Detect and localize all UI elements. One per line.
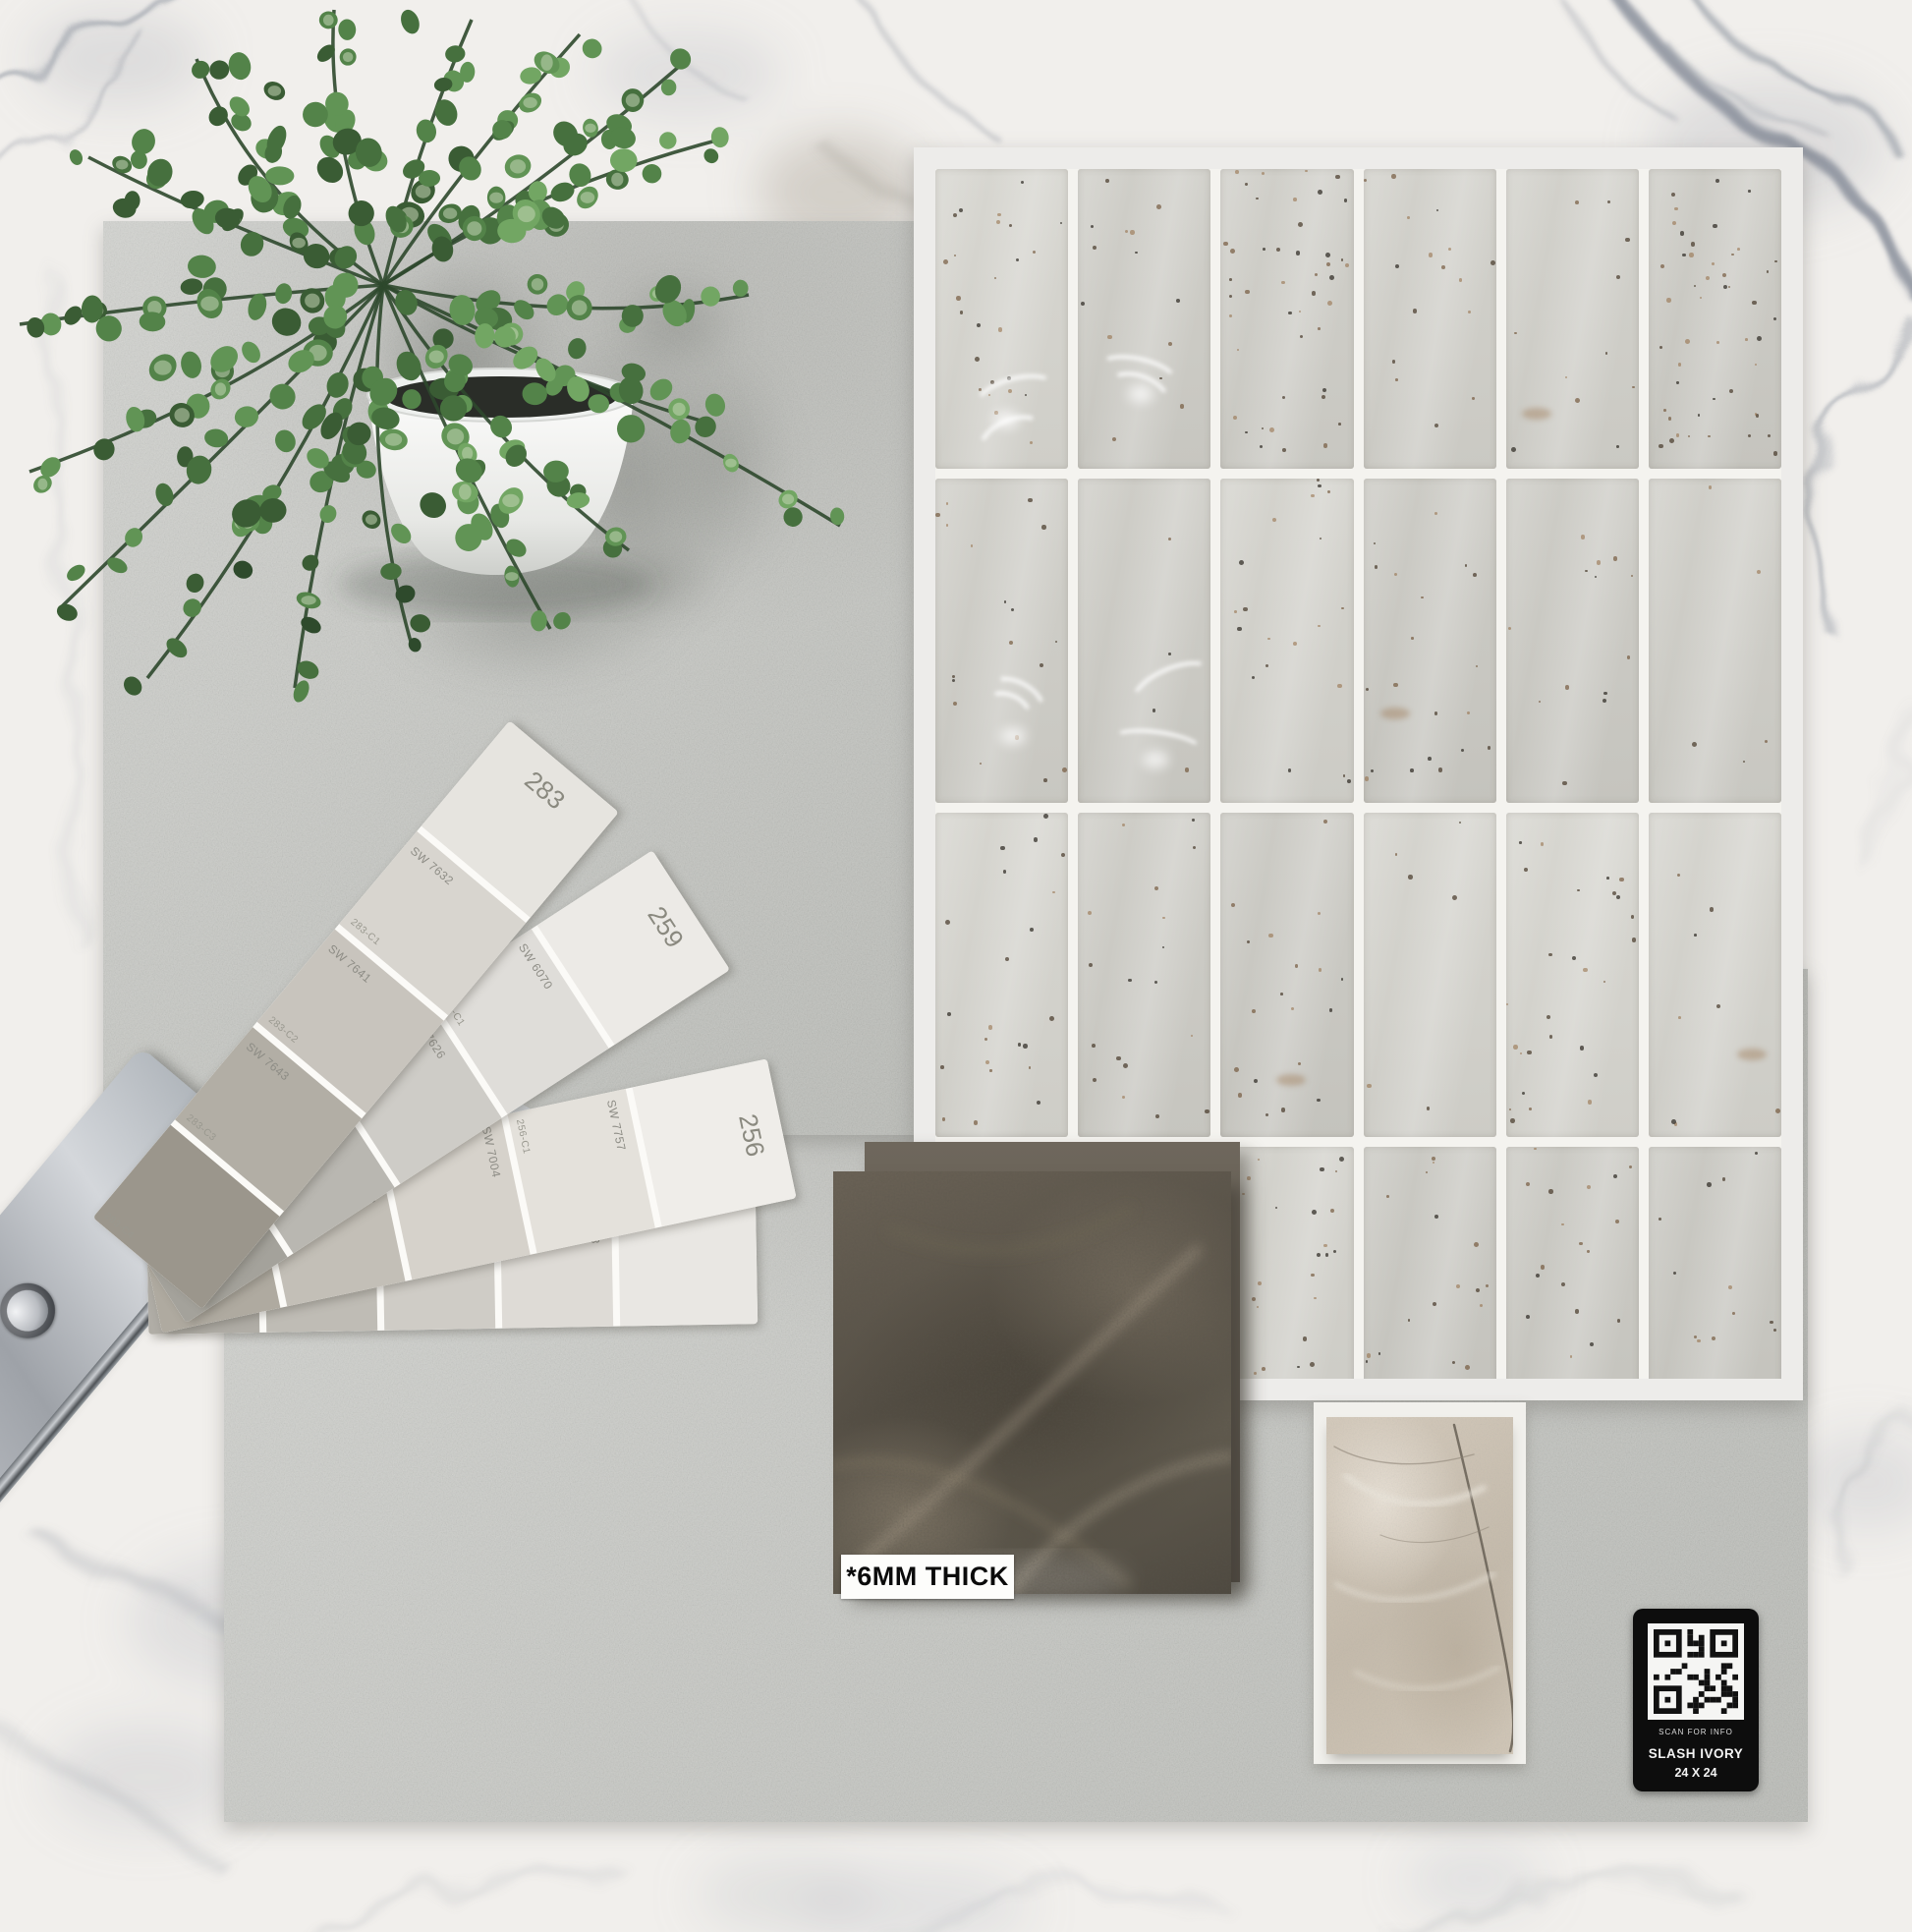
tile-speckle — [1548, 953, 1551, 956]
tile-speckle — [984, 1038, 987, 1041]
tile-speckle — [1254, 1372, 1257, 1375]
tile-speckle — [1168, 342, 1172, 346]
tile-speckle — [1297, 1366, 1299, 1368]
tile-speckle — [1671, 193, 1675, 197]
tile-speckle — [1245, 290, 1250, 295]
tile-speckle — [1722, 273, 1726, 277]
tile-speckle — [1245, 431, 1247, 433]
subway-tile — [1364, 479, 1496, 803]
tile-speckle — [1281, 281, 1285, 285]
tile-speckle — [1041, 525, 1045, 529]
tile-speckle — [1268, 934, 1272, 938]
tile-speckle — [1541, 842, 1545, 846]
tile-speckle — [1234, 1067, 1239, 1072]
tile-speckle — [1257, 1306, 1259, 1308]
tile-speckle — [1176, 299, 1180, 303]
tile-speckle — [1105, 179, 1109, 183]
tile-speckle — [1262, 172, 1265, 175]
tile-speckle — [1325, 253, 1330, 257]
subway-tile — [1364, 813, 1496, 1137]
subway-tile — [1078, 813, 1210, 1137]
tile-speckle — [988, 1025, 992, 1029]
tile-speckle — [1606, 877, 1609, 880]
tile-speckle — [1162, 946, 1164, 948]
tile-sheen — [1220, 1147, 1353, 1379]
tile-speckle — [1408, 1319, 1410, 1321]
tile-speckle — [1330, 1209, 1334, 1213]
tile-speckle — [977, 323, 981, 327]
tile-speckle — [1434, 1215, 1438, 1219]
swatch-id-code: 283-C1 — [348, 917, 382, 947]
tile-sheen — [1364, 1147, 1496, 1379]
tile-speckle — [979, 388, 982, 391]
tile-speckle — [1710, 907, 1714, 911]
tile-sheen — [1649, 813, 1781, 1137]
tile-speckle — [1230, 249, 1235, 254]
tile-speckle — [952, 679, 955, 682]
tile-speckle — [1347, 779, 1351, 783]
tile-speckle — [1305, 170, 1307, 172]
tile-speckle — [1692, 742, 1697, 747]
tile-speckle — [1395, 378, 1398, 381]
tile-speckle — [1310, 1362, 1315, 1367]
tile-speckle — [1429, 253, 1433, 256]
tile-speckle — [1258, 1159, 1260, 1161]
tile-speckle — [1205, 1109, 1209, 1114]
tile-speckle — [1088, 911, 1092, 915]
tile-speckle — [1391, 174, 1396, 179]
tile-speckle — [1680, 231, 1684, 235]
tile-speckle — [1513, 1045, 1518, 1050]
tile-speckle — [1519, 841, 1521, 843]
tile-speckle — [1337, 684, 1341, 688]
tile-speckle — [1411, 637, 1413, 639]
tile-speckle — [1234, 610, 1237, 613]
tile-speckle — [1465, 564, 1467, 566]
tile-speckle — [1375, 565, 1378, 568]
tile-sheen — [1220, 479, 1353, 803]
tile-speckle — [1317, 1099, 1321, 1103]
tile-speckle — [1303, 1336, 1307, 1340]
tile-sheen — [1078, 813, 1210, 1137]
tile-speckle — [1712, 1336, 1715, 1340]
tile-speckle — [1748, 434, 1751, 437]
tile-sheen — [1506, 169, 1639, 469]
tile-speckle — [1536, 1274, 1540, 1278]
tile-speckle — [1231, 903, 1235, 907]
tile-speckle — [1707, 1182, 1712, 1187]
tile-speckle — [1428, 757, 1432, 761]
tile-speckle — [1755, 413, 1757, 415]
tile-speckle — [1005, 957, 1009, 961]
tile-speckle — [940, 1065, 944, 1069]
tile-speckle — [1247, 940, 1250, 943]
tile-speckle — [1016, 258, 1019, 261]
swatch-sw-code: SW 7632 — [408, 844, 456, 888]
subway-tile — [1506, 813, 1639, 1137]
tile-speckle — [989, 1069, 991, 1071]
tile-speckle — [1603, 692, 1606, 695]
tile-speckle — [1434, 711, 1438, 715]
tile-speckle — [1192, 819, 1194, 821]
tile-sheen — [935, 813, 1068, 1137]
tile-speckle — [1745, 338, 1748, 341]
tile-speckle — [1526, 1182, 1530, 1186]
tile-speckle — [1548, 1189, 1553, 1194]
swatch-sw-code: SW 7757 — [604, 1099, 629, 1153]
tile-speckle — [1427, 1107, 1430, 1109]
tile-speckle — [1669, 438, 1674, 443]
tile-speckle — [1386, 1195, 1389, 1198]
tile-speckle — [1510, 1118, 1515, 1123]
tile-speckle — [1585, 570, 1588, 573]
tile-speckle — [1407, 216, 1410, 219]
subway-tile — [1649, 813, 1781, 1137]
strip-number: 283 — [518, 765, 570, 816]
tile-speckle — [1394, 573, 1397, 576]
product-name: SLASH IVORY — [1633, 1746, 1759, 1761]
tile-speckle — [1262, 1367, 1265, 1371]
product-qr-label: SCAN FOR INFO SLASH IVORY 24 X 24 — [1633, 1609, 1759, 1791]
tile-speckle — [1529, 1108, 1532, 1110]
subway-tile — [1506, 169, 1639, 469]
tile-speckle — [1338, 423, 1341, 426]
tile-speckle — [1426, 1171, 1428, 1173]
subway-tile — [1220, 1147, 1353, 1379]
tile-speckle — [1433, 1162, 1434, 1164]
tile-speckle — [1263, 248, 1265, 251]
tile-sheen — [1364, 813, 1496, 1137]
tile-speckle — [1229, 278, 1232, 281]
swatch-sw-code: SW 7004 — [479, 1125, 504, 1179]
tile-speckle — [1028, 498, 1032, 502]
tile-speckle — [994, 277, 996, 279]
tile-speckle — [1723, 285, 1727, 289]
tile-speckle — [1616, 445, 1619, 448]
tile-speckle — [1678, 363, 1681, 366]
tile-speckle — [1689, 253, 1694, 257]
material-flatlay-scene: *6MM THICK SCAN FOR INFO SLASH IVORY 24 … — [0, 0, 1912, 1932]
subway-tile — [1220, 169, 1353, 469]
tile-speckle — [1452, 1361, 1455, 1364]
tile-speckle — [1722, 1177, 1726, 1181]
tile-speckle — [954, 255, 956, 256]
tile-speckle — [1583, 968, 1588, 973]
tile-sheen — [1649, 1147, 1781, 1379]
tile-speckle — [1659, 346, 1662, 349]
tile-speckle — [1125, 230, 1128, 233]
tile-speckle — [1743, 761, 1745, 763]
tile-speckle — [960, 311, 964, 314]
tile-speckle — [1281, 1108, 1286, 1112]
tile-speckle — [1004, 600, 1007, 603]
thickness-label: *6MM THICK — [841, 1555, 1014, 1599]
rust-smudge — [1522, 408, 1551, 420]
tile-speckle — [1122, 1096, 1125, 1099]
tile-speckle — [1615, 1220, 1619, 1223]
tile-speckle — [1421, 597, 1423, 598]
tile-speckle — [1748, 190, 1750, 192]
tile-speckle — [1575, 1309, 1579, 1313]
tile-sheen — [935, 479, 1068, 803]
tile-speckle — [1490, 260, 1495, 265]
subway-tile — [1078, 479, 1210, 803]
subway-tile — [935, 479, 1068, 803]
swatch-sw-code: SW 6070 — [516, 940, 556, 992]
tile-sheen — [1364, 479, 1496, 803]
tile-speckle — [1587, 1185, 1591, 1189]
tile-speckle — [1541, 1265, 1546, 1270]
tile-speckle — [1436, 209, 1438, 211]
tile-speckle — [1311, 494, 1314, 497]
tile-speckle — [1773, 451, 1778, 456]
tile-speckle — [1765, 740, 1768, 743]
tile-speckle — [1770, 1321, 1772, 1324]
tile-speckle — [1265, 1113, 1268, 1116]
tile-speckle — [1367, 1084, 1372, 1089]
paint-swatch: SW 7757256-C1 — [507, 1089, 654, 1253]
tile-speckle — [1587, 1250, 1589, 1252]
swatch-sw-code: SW 7641 — [325, 941, 373, 986]
tile-speckle — [1438, 767, 1442, 771]
tile-speckle — [1676, 381, 1678, 383]
tile-sheen — [1078, 169, 1210, 469]
swatch-id-code: 283-C2 — [266, 1015, 301, 1046]
tile-speckle — [1168, 653, 1171, 655]
clasp-screw-icon — [0, 1272, 66, 1349]
tile-speckle — [1775, 1108, 1780, 1113]
tile-speckle — [1773, 1329, 1776, 1332]
tile-speckle — [1280, 993, 1283, 995]
subway-tile — [1649, 1147, 1781, 1379]
tile-speckle — [1752, 301, 1757, 306]
tile-speckle — [1018, 1043, 1021, 1046]
tile-sheen — [1649, 479, 1781, 803]
tile-speckle — [1472, 397, 1474, 399]
tile-speckle — [1524, 868, 1528, 872]
tile-speckle — [1570, 1355, 1573, 1358]
tile-speckle — [1393, 683, 1397, 687]
tile-speckle — [1713, 224, 1716, 228]
tile-speckle — [1327, 301, 1332, 306]
tile-speckle — [1580, 1046, 1584, 1050]
tile-speckle — [1318, 190, 1322, 195]
tile-speckle — [1632, 386, 1634, 388]
tile-speckle — [1339, 1157, 1344, 1162]
dark-marble-tile: *6MM THICK — [833, 1171, 1231, 1594]
tile-speckle — [1561, 1223, 1564, 1226]
strip-tip-swatch: 256 — [633, 1058, 797, 1226]
tile-speckle — [1130, 230, 1134, 234]
subway-tile — [1078, 169, 1210, 469]
tile-speckle — [1229, 295, 1232, 298]
tile-speckle — [1318, 484, 1322, 488]
tile-speckle — [1000, 846, 1005, 851]
tile-speckle — [1527, 1051, 1531, 1054]
beige-marble-tile — [1326, 1417, 1513, 1754]
tile-speckle — [1343, 774, 1345, 776]
tile-speckle — [1685, 339, 1690, 344]
tile-speckle — [1757, 336, 1762, 341]
tile-speckle — [1682, 254, 1685, 256]
subway-tile — [935, 813, 1068, 1137]
tile-speckle — [1715, 179, 1719, 183]
tile-speckle — [1694, 934, 1697, 937]
swatch-id-code: 256-C1 — [514, 1118, 532, 1155]
tile-speckle — [1030, 928, 1034, 932]
tile-speckle — [1562, 781, 1567, 786]
tile-speckle — [1288, 312, 1292, 315]
tile-speckle — [1295, 964, 1298, 967]
tile-speckle — [1434, 424, 1438, 427]
qr-code-icon — [1648, 1623, 1744, 1720]
tile-speckle — [975, 357, 980, 362]
tile-speckle — [1659, 1218, 1661, 1221]
subway-tile — [1649, 169, 1781, 469]
tile-speckle — [1252, 1297, 1256, 1301]
tile-speckle — [1565, 376, 1567, 378]
tile-speckle — [1709, 485, 1713, 489]
tile-speckle — [1312, 1210, 1317, 1215]
tile-speckle — [1062, 767, 1067, 772]
tile-speckle — [1575, 200, 1579, 204]
tile-sheen — [1506, 479, 1639, 803]
tile-speckle — [1265, 664, 1268, 667]
tile-speckle — [1116, 1056, 1120, 1060]
tile-speckle — [956, 296, 960, 300]
potted-plant — [0, 0, 884, 767]
tile-sheen — [1506, 813, 1639, 1137]
tile-speckle — [1282, 448, 1286, 452]
tile-speckle — [1260, 445, 1263, 448]
tile-speckle — [1410, 768, 1414, 772]
tile-speckle — [1459, 278, 1463, 282]
tile-speckle — [1395, 264, 1399, 268]
tile-speckle — [1092, 1044, 1096, 1048]
tile-speckle — [1549, 1035, 1552, 1038]
tile-speckle — [1037, 1101, 1040, 1105]
tile-speckle — [1613, 556, 1617, 560]
product-size: 24 X 24 — [1633, 1766, 1759, 1780]
tile-speckle — [1093, 246, 1097, 250]
qr-modules — [1654, 1629, 1738, 1714]
tile-speckle — [1526, 1315, 1530, 1319]
tile-speckle — [1314, 1297, 1316, 1299]
tile-speckle — [1698, 414, 1701, 417]
tile-speckle — [1245, 183, 1247, 185]
tile-speckle — [1258, 1281, 1262, 1285]
subway-tile — [1364, 1147, 1496, 1379]
tile-speckle — [1617, 1319, 1621, 1323]
tile-sheen — [1220, 169, 1353, 469]
tile-speckle — [1731, 254, 1733, 256]
tile-speckle — [1678, 1016, 1681, 1019]
subway-tile — [935, 169, 1068, 469]
tile-speckle — [1413, 309, 1417, 313]
tile-speckle — [1432, 1157, 1435, 1161]
tile-speckle — [1049, 1016, 1054, 1021]
tile-speckle — [1272, 518, 1276, 522]
tile-speckle — [1677, 874, 1680, 877]
tile-speckle — [1235, 170, 1239, 174]
strip-number: 256 — [732, 1110, 770, 1159]
tile-speckle — [1256, 198, 1259, 200]
tile-speckle — [1465, 1365, 1470, 1370]
tile-speckle — [1247, 1176, 1251, 1180]
swatch-id-code: 283-C3 — [184, 1112, 218, 1143]
tile-speckle — [1298, 1062, 1301, 1065]
tile-speckle — [1631, 915, 1634, 918]
tile-speckle — [1773, 317, 1776, 320]
tile-speckle — [1293, 198, 1297, 201]
tile-speckle — [1659, 444, 1663, 449]
tile-speckle — [1323, 443, 1327, 447]
tile-speckle — [1043, 778, 1047, 782]
tile-speckle — [985, 1060, 989, 1064]
tile-speckle — [1223, 242, 1227, 246]
tile-speckle — [1732, 1312, 1735, 1315]
tile-speckle — [1663, 409, 1666, 412]
tile-speckle — [1588, 1100, 1592, 1104]
subway-tile — [1649, 479, 1781, 803]
tile-speckle — [1312, 291, 1317, 296]
tile-speckle — [1311, 1274, 1315, 1278]
tile-speckle — [1666, 298, 1671, 303]
tile-speckle — [1514, 332, 1517, 335]
tile-speckle — [1318, 327, 1321, 330]
tile-sheen — [1220, 813, 1353, 1137]
subway-tile — [1506, 479, 1639, 803]
swatch-sw-code: SW 7643 — [244, 1040, 292, 1084]
subway-tile — [1506, 1147, 1639, 1379]
tile-speckle — [1023, 1044, 1028, 1049]
tile-speckle — [1341, 978, 1343, 980]
tile-speckle — [1473, 573, 1477, 577]
qr-caption: SCAN FOR INFO — [1633, 1728, 1759, 1736]
subway-tile — [1364, 169, 1496, 469]
tile-sheen — [1649, 169, 1781, 469]
gloss-highlight — [993, 412, 1019, 427]
subway-tile — [1220, 479, 1353, 803]
strip-number: 259 — [641, 901, 690, 953]
tile-speckle — [998, 327, 1003, 332]
tile-speckle — [1708, 435, 1711, 438]
tile-speckle — [1408, 875, 1412, 879]
tile-speckle — [1325, 1253, 1329, 1257]
subway-tile — [1220, 813, 1353, 1137]
tile-speckle — [1434, 512, 1437, 515]
tile-speckle — [1625, 238, 1629, 242]
tile-speckle — [1011, 608, 1014, 611]
tile-speckle — [1674, 207, 1677, 210]
tile-speckle — [1520, 1052, 1522, 1054]
tile-sheen — [1364, 169, 1496, 469]
tile-speckle — [1575, 398, 1580, 403]
